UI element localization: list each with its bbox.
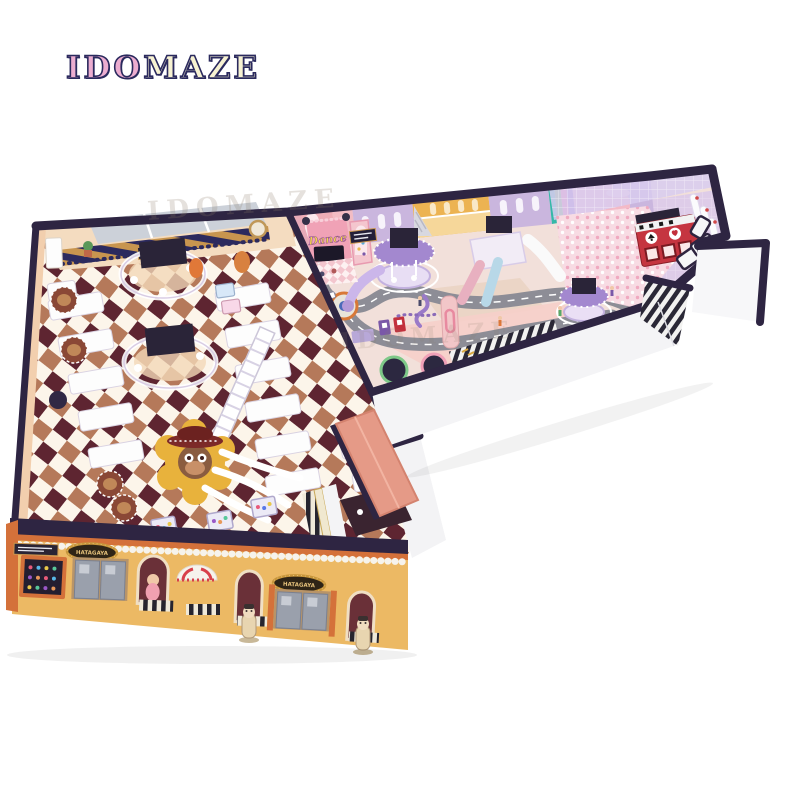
- navy-round-table: [49, 391, 67, 409]
- dancer-dot: [332, 269, 337, 274]
- stage-screen: [314, 245, 345, 262]
- playground-render: Dance: [0, 0, 800, 800]
- white-door: [45, 238, 62, 269]
- doors-left: [71, 557, 128, 601]
- tube-exit: [342, 300, 354, 312]
- striped-awning-2: [186, 604, 220, 615]
- canopy-box: [145, 324, 196, 357]
- stage-figure: [342, 213, 350, 221]
- mascot-orange: [189, 258, 203, 278]
- product-image-page: IDOMAZE: [0, 0, 800, 800]
- brand-logo-first: IDO: [66, 50, 143, 86]
- corner-pilaster: [6, 520, 18, 612]
- svg-text:HATAGAYA: HATAGAYA: [76, 550, 109, 557]
- brand-logo: IDOMAZE: [66, 50, 260, 86]
- storefront-facade: HATAGAYA: [6, 518, 408, 655]
- plant-pot: [84, 250, 92, 257]
- platform-top-box: [486, 216, 512, 233]
- cafe-sign: [349, 228, 376, 243]
- clown-hat: [177, 426, 213, 442]
- menu-board: [19, 555, 67, 599]
- cube-window: [662, 244, 676, 258]
- carousel-top-box: [390, 228, 418, 248]
- canopy-box: [139, 238, 187, 269]
- plant: [83, 241, 93, 251]
- round-mirror: [250, 221, 266, 237]
- far-right-block: [692, 243, 766, 322]
- striped-awning-1: [139, 600, 173, 612]
- cube-window: [645, 247, 659, 261]
- ground-shadow-front: [7, 646, 417, 664]
- menu-sign: [14, 543, 58, 556]
- mascot-caramel: [234, 251, 250, 273]
- brand-logo-second: MAZE: [143, 50, 260, 86]
- carousel2-top-box: [572, 278, 596, 294]
- stage-figure: [302, 217, 310, 225]
